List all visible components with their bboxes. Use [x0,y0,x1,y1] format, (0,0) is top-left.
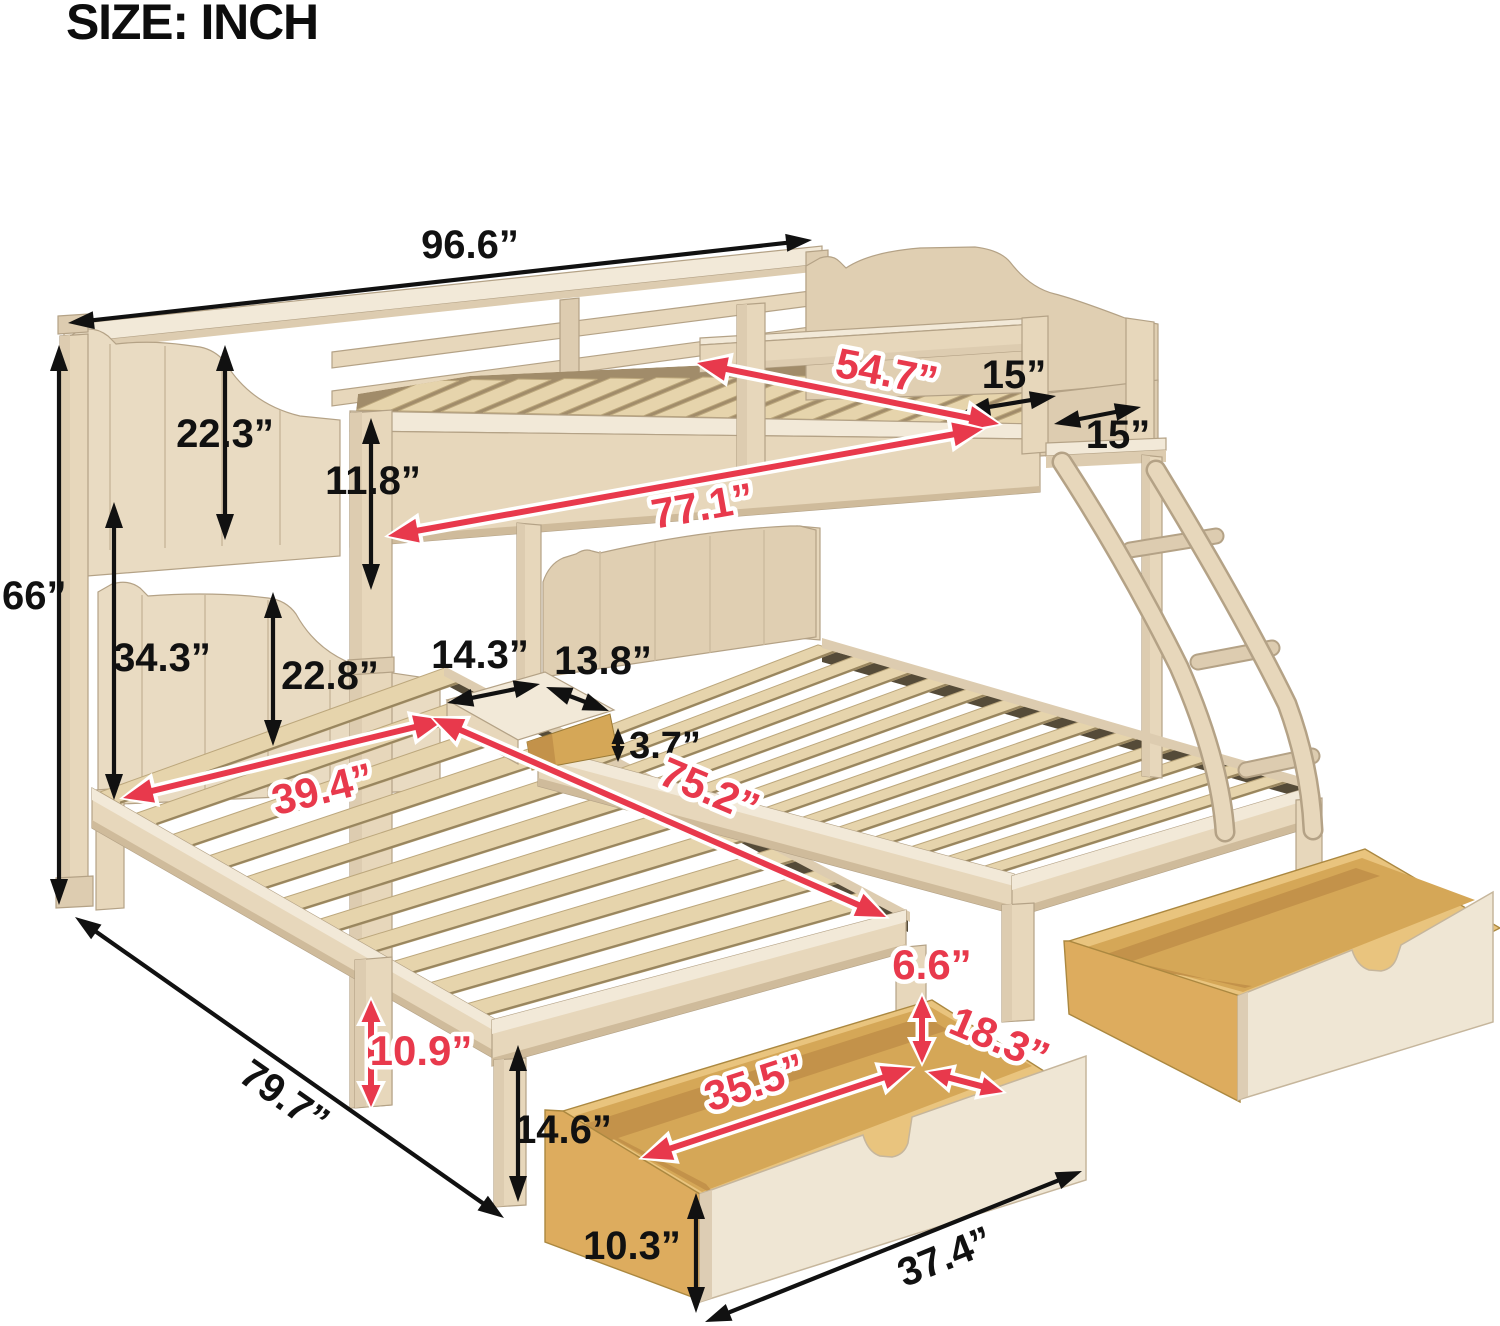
svg-text:34.3”: 34.3” [113,636,211,680]
svg-text:13.8”: 13.8” [554,639,652,683]
svg-text:22.3”: 22.3” [176,412,274,456]
svg-text:11.8”: 11.8” [325,459,421,503]
svg-text:10.3”: 10.3” [583,1224,681,1268]
svg-text:22.8”: 22.8” [281,654,379,698]
svg-text:96.6”: 96.6” [421,223,519,267]
svg-text:14.6”: 14.6” [514,1108,612,1152]
svg-text:66”: 66” [2,574,67,618]
svg-text:15”: 15” [982,353,1047,397]
svg-text:15”: 15” [1086,413,1151,457]
svg-text:10.9”: 10.9” [370,1027,473,1074]
svg-text:14.3”: 14.3” [431,633,529,677]
svg-text:SIZE: INCH: SIZE: INCH [66,0,318,50]
svg-text:6.6”: 6.6” [892,941,971,988]
